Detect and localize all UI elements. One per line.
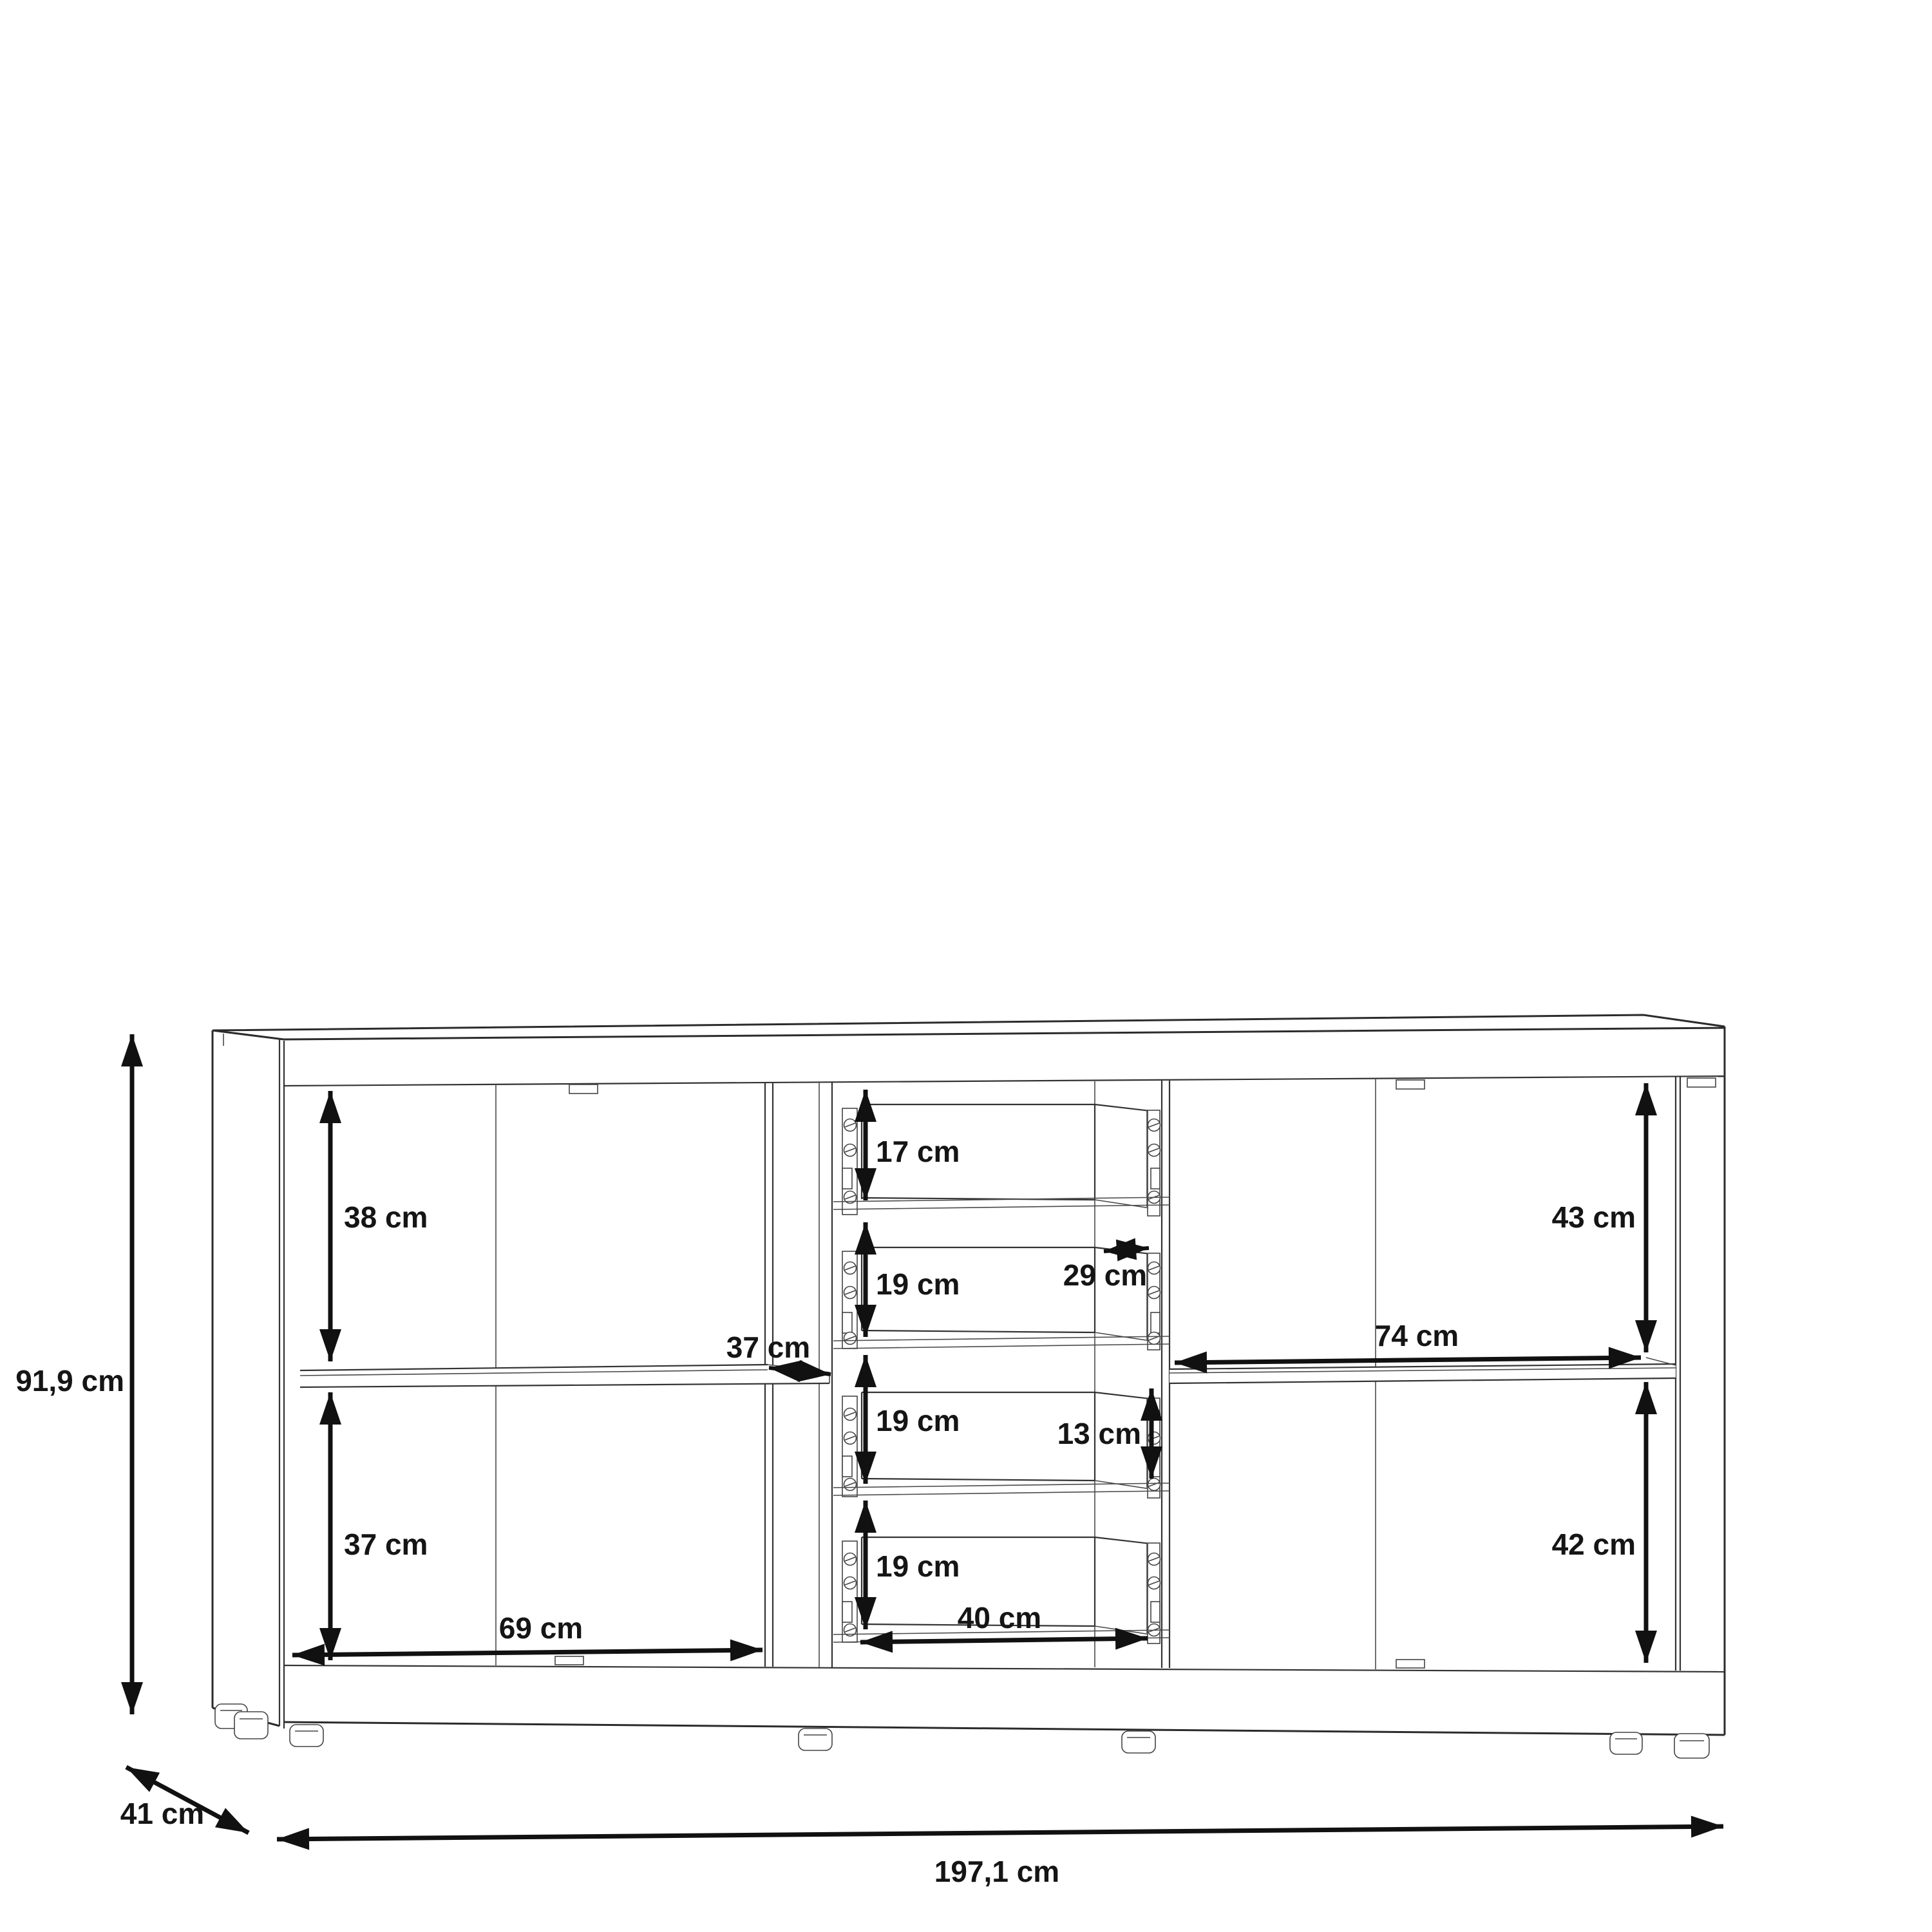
drawer-slide-rail-right: [1148, 1110, 1160, 1216]
screw-icon: [844, 1479, 857, 1491]
foot-mid-left: [799, 1728, 832, 1750]
feet: [215, 1704, 1709, 1758]
screw-icon: [1148, 1332, 1160, 1345]
dim-overall-depth-label: 41 cm: [120, 1797, 204, 1830]
dim-left-upper-label: 38 cm: [344, 1200, 428, 1234]
base-bottom-line: [284, 1722, 1725, 1735]
drawer-slide-rail-right: [1148, 1253, 1160, 1350]
screw-icon: [844, 1408, 857, 1421]
drawer-slide-rail-left: [842, 1251, 857, 1349]
dim-drawer2-label: 19 cm: [876, 1267, 960, 1301]
dim-left-shelf-depth-label: 37 cm: [726, 1331, 810, 1364]
hinge-mark-bottom-right: [1396, 1660, 1425, 1668]
dim-drawer-width-label: 40 cm: [958, 1601, 1041, 1634]
hinge-mark-bottom-left: [555, 1656, 583, 1665]
screw-icon: [844, 1144, 857, 1157]
dim-drawer-width-arrow: [860, 1638, 1148, 1642]
foot-mid-right: [1122, 1731, 1155, 1753]
interior-top-line: [284, 1076, 1725, 1086]
foot-corner-right: [1674, 1734, 1709, 1758]
screw-icon: [1148, 1553, 1160, 1566]
hinge-mark-top-far-right: [1687, 1078, 1716, 1087]
drawer-slide-rail-right: [1148, 1543, 1160, 1643]
screw-icon: [844, 1577, 857, 1589]
page-canvas: 91,9 cm 41 cm 197,1 cm 38 cm 37 cm 69 cm…: [0, 0, 1932, 1932]
top-back-edge: [213, 1015, 1725, 1030]
base-top-line: [284, 1665, 1725, 1672]
dim-left-door-width-arrow: [292, 1650, 762, 1655]
foot-front-right: [1610, 1732, 1642, 1754]
dim-left-door-width-label: 69 cm: [499, 1611, 583, 1645]
left-side-panel: [213, 1030, 284, 1728]
screw-icon: [844, 1553, 857, 1566]
screw-icon: [1148, 1144, 1160, 1157]
screw-icon: [1148, 1577, 1160, 1589]
dim-overall-width-label: 197,1 cm: [934, 1855, 1059, 1888]
screw-icon: [1148, 1287, 1160, 1299]
hinge-mark-top-left: [569, 1084, 598, 1094]
dim-drawer-inner-depth-label: 29 cm: [1063, 1258, 1147, 1292]
drawer-slide-rail-left: [842, 1108, 857, 1215]
dim-right-lower-label: 42 cm: [1552, 1528, 1636, 1561]
dim-right-shelf-width-label: 74 cm: [1375, 1319, 1459, 1352]
screw-icon: [1148, 1479, 1160, 1491]
screw-icon: [844, 1432, 857, 1444]
foot-front-left-side: [234, 1712, 268, 1739]
dim-drawer4-label: 19 cm: [876, 1549, 960, 1583]
dim-drawer1-label: 17 cm: [876, 1135, 960, 1168]
screw-icon: [844, 1262, 857, 1274]
screw-icon: [844, 1332, 857, 1345]
dim-right-upper-label: 43 cm: [1552, 1200, 1636, 1234]
dim-drawer3-label: 19 cm: [876, 1404, 960, 1437]
screw-icon: [1148, 1119, 1160, 1132]
dim-left-lower-label: 37 cm: [344, 1528, 428, 1561]
screw-icon: [1148, 1262, 1160, 1274]
drawer-slide-rail-left: [842, 1396, 857, 1497]
foot-front-left: [290, 1725, 323, 1747]
drawer-rail-line-b: [833, 1205, 1170, 1209]
screw-icon: [844, 1119, 857, 1132]
top-front-edge: [284, 1028, 1725, 1039]
hinge-mark-top-right: [1396, 1080, 1425, 1089]
furniture-dimension-diagram: 91,9 cm 41 cm 197,1 cm 38 cm 37 cm 69 cm…: [0, 0, 1932, 1932]
drawer-slide-rail-left: [842, 1541, 857, 1642]
screw-icon: [844, 1287, 857, 1299]
dim-drawer-inner-height-label: 13 cm: [1057, 1417, 1141, 1450]
dim-overall-height-label: 91,9 cm: [15, 1364, 124, 1397]
left-shelf: [300, 1365, 829, 1387]
dim-right-shelf-width-arrow: [1175, 1358, 1641, 1363]
dim-overall-width-arrow: [277, 1826, 1723, 1839]
